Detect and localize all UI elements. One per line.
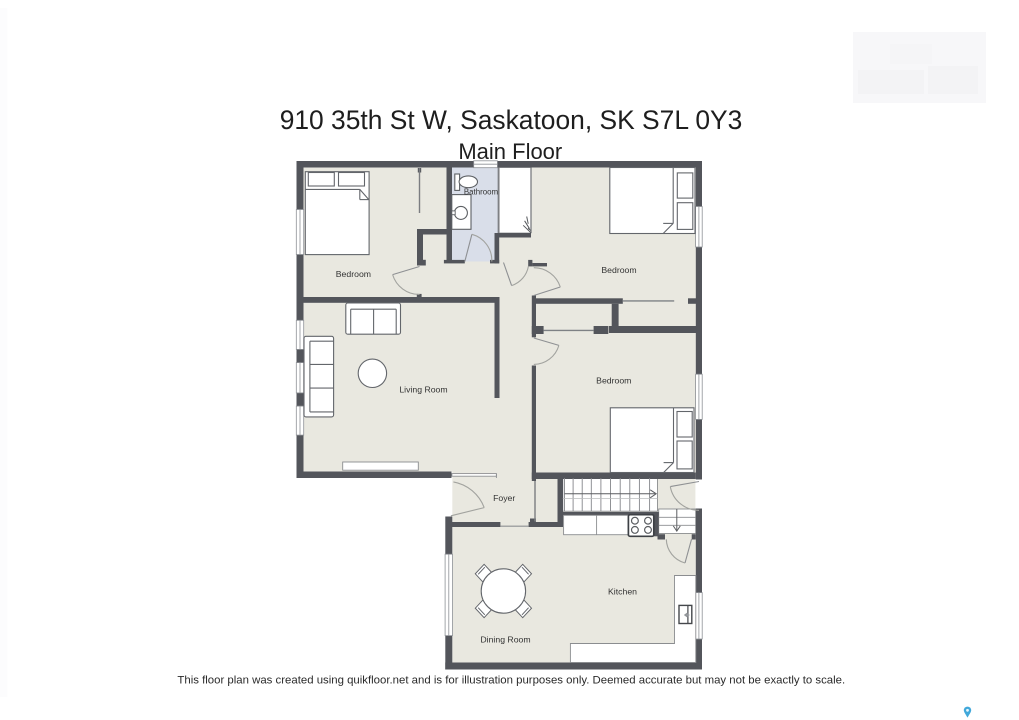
- svg-text:Foyer: Foyer: [493, 493, 515, 503]
- svg-text:Bedroom: Bedroom: [336, 269, 371, 279]
- svg-text:Bedroom: Bedroom: [601, 265, 636, 275]
- svg-text:Bedroom: Bedroom: [596, 376, 631, 386]
- svg-text:Living Room: Living Room: [399, 385, 447, 395]
- svg-text:This floor plan was created us: This floor plan was created using quikfl…: [177, 674, 845, 686]
- svg-text:910 35th St W, Saskatoon, SK S: 910 35th St W, Saskatoon, SK S7L 0Y3: [280, 105, 743, 135]
- svg-text:Kitchen: Kitchen: [608, 587, 637, 597]
- svg-text:Dining Room: Dining Room: [480, 634, 530, 644]
- svg-text:Bathroom: Bathroom: [464, 187, 499, 196]
